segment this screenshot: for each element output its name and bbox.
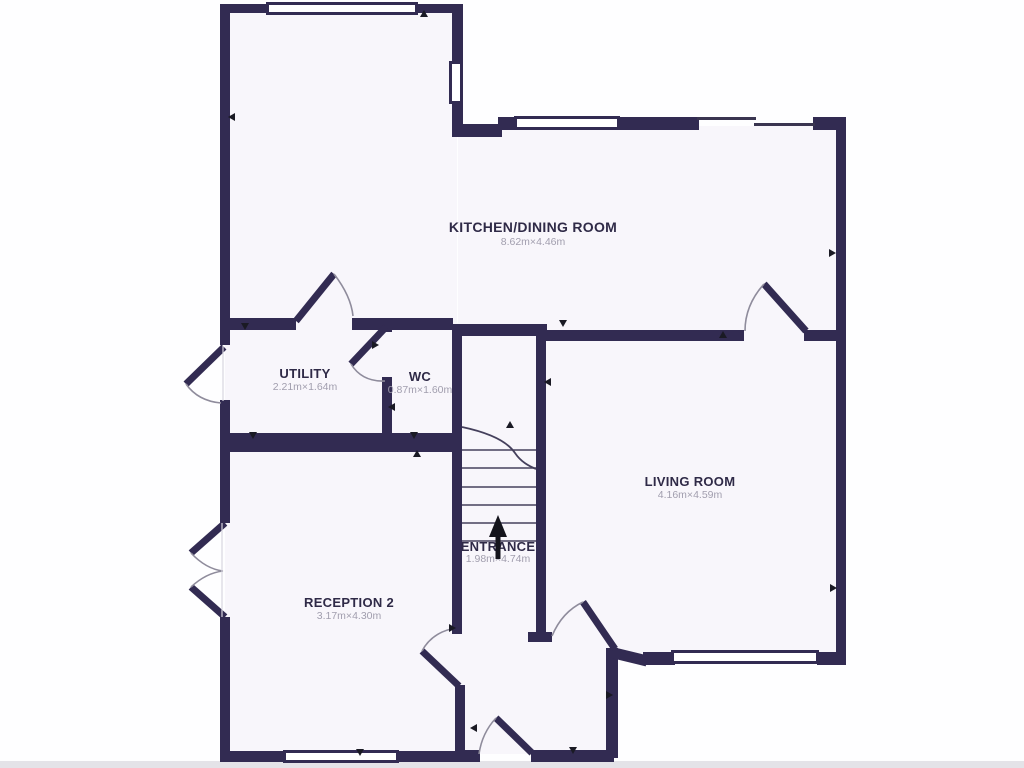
- window: [449, 61, 463, 104]
- door-arc: [191, 571, 223, 587]
- wall-segment: [352, 318, 453, 330]
- window: [266, 2, 418, 15]
- wall-segment: [395, 751, 462, 762]
- wall-segment: [220, 4, 230, 345]
- wall-segment: [546, 330, 744, 341]
- wall-segment: [220, 433, 462, 452]
- wall-segment: [836, 117, 846, 660]
- wall-segment: [536, 330, 546, 642]
- wall-segment: [452, 4, 463, 64]
- door-leaf: [186, 347, 224, 384]
- room-dims-reception: 3.17m×4.30m: [317, 610, 382, 622]
- room-dims-entrance: 1.98m×4.74m: [466, 553, 531, 565]
- wall-segment: [220, 4, 272, 13]
- door-arc: [186, 384, 221, 403]
- wall-segment: [452, 324, 462, 634]
- wall-segment: [804, 330, 846, 341]
- room-label-wc: WC: [409, 369, 431, 384]
- room-dims-utility: 2.21m×1.64m: [273, 381, 338, 393]
- door-leaf: [191, 587, 225, 617]
- page-bottom-edge: [0, 761, 1024, 768]
- wall-segment: [220, 617, 230, 762]
- room-label-reception: RECEPTION 2: [304, 595, 394, 610]
- room-label-living: LIVING ROOM: [645, 474, 736, 489]
- floorplan-canvas: KITCHEN/DINING ROOM 8.62m×4.46m UTILITY …: [0, 0, 1024, 768]
- wall-segment: [618, 117, 699, 130]
- room-label-kitchen: KITCHEN/DINING ROOM: [449, 219, 617, 235]
- open-plan-divider-line: [754, 123, 815, 126]
- door-arc: [191, 553, 223, 571]
- wall-segment: [220, 751, 287, 762]
- wall-segment: [220, 400, 230, 523]
- wall-segment: [452, 324, 547, 336]
- wall-segment: [452, 124, 502, 137]
- door-leaf: [191, 523, 225, 553]
- wall-segment: [528, 632, 552, 642]
- wall-segment: [382, 318, 392, 332]
- room-dims-kitchen: 8.62m×4.46m: [501, 236, 566, 248]
- wall-segment: [606, 648, 618, 758]
- room-label-entrance: ENTRANCE: [461, 539, 536, 554]
- wall-segment: [817, 652, 846, 665]
- wall-segment: [531, 750, 614, 762]
- room-dims-living: 4.16m×4.59m: [658, 489, 723, 501]
- open-plan-divider-line: [697, 117, 756, 120]
- window: [283, 750, 399, 763]
- room-label-utility: UTILITY: [279, 366, 330, 381]
- window: [514, 116, 620, 130]
- window: [671, 650, 819, 664]
- wall-segment: [220, 318, 296, 330]
- room-dims-wc: 0.87m×1.60m: [388, 384, 453, 396]
- kitchen-floor-left: [225, 8, 457, 323]
